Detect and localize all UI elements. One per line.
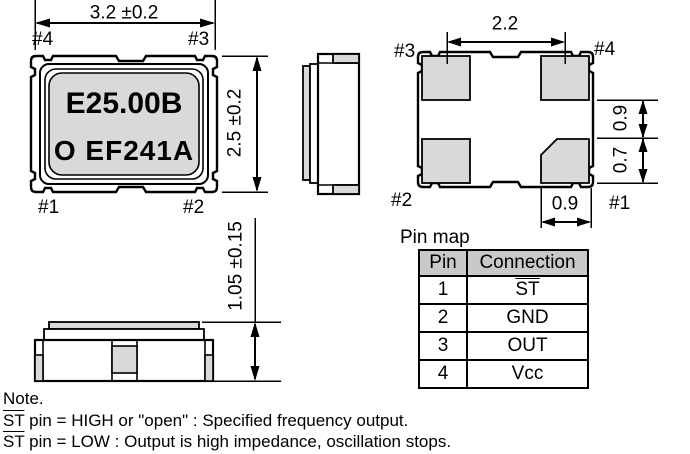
dim-pad-pitch-label: 2.2 (492, 15, 518, 34)
bottom-view-pin4-label: #4 (594, 40, 615, 59)
side-view-vertical (303, 54, 359, 194)
top-view-pin3-label: #3 (188, 30, 209, 49)
arrowhead (551, 38, 565, 47)
bottom-view-pin2-label: #2 (391, 191, 412, 210)
solder-pad (333, 54, 359, 63)
arrowhead (251, 366, 260, 381)
dim-pad-gap-label: 0.9 (612, 105, 631, 131)
lid-layer-outer (303, 66, 310, 180)
note-block: Note. ST pin = HIGH or "open" : Specifie… (3, 388, 451, 453)
arrowhead (639, 124, 648, 138)
note-title: Note. (3, 388, 451, 410)
st-bar-signal: ST (3, 411, 24, 430)
top-view-pin1-label: #1 (38, 198, 59, 217)
st-bar-signal: ST (3, 432, 24, 451)
side-view-horizontal (35, 322, 213, 381)
dim-total-height-label: 1.05 ±0.15 (227, 221, 246, 311)
note-line-1: ST pin = HIGH or "open" : Specified freq… (3, 410, 451, 432)
pin-number: 4 (419, 360, 467, 388)
lid-layer-inner (310, 64, 318, 183)
marking-lot-code: O EF241A (54, 137, 194, 165)
arrowhead (35, 19, 50, 28)
pad-2 (422, 139, 470, 183)
arrowhead (251, 322, 260, 337)
dim-pad-width-label: 0.9 (552, 195, 578, 214)
arrowhead (639, 138, 648, 152)
end-terminal (35, 355, 43, 381)
top-view (31, 56, 217, 192)
arrowhead (541, 218, 555, 227)
pin-map-row-3: 3 OUT (419, 332, 588, 360)
note-line-2-text: pin = LOW : Output is high impedance, os… (24, 432, 451, 451)
dim-top-height-label: 2.5 ±0.2 (226, 89, 245, 158)
pin-map-table: Pin Connection 1 ST 2 GND 3 OUT 4 Vcc (418, 249, 589, 389)
lid (49, 322, 199, 329)
arrowhead (577, 218, 591, 227)
dim-pad-len-label: 0.7 (612, 147, 631, 173)
pin-map-row-1: 1 ST (419, 276, 588, 304)
pin-number: 2 (419, 304, 467, 332)
arrowhead (639, 169, 648, 183)
end-terminal (205, 355, 213, 381)
arrowhead (639, 100, 648, 114)
top-view-pin2-label: #2 (183, 198, 204, 217)
arrowhead (447, 38, 461, 47)
dim-top-width-label: 3.2 ±0.2 (90, 4, 159, 23)
pin-map-row-4: 4 Vcc (419, 360, 588, 388)
marking-frequency: E25.00B (66, 89, 183, 119)
pin-map-header-connection: Connection (467, 250, 588, 276)
note-line-1-text: pin = HIGH or "open" : Specified frequen… (24, 411, 408, 430)
st-bar-signal: ST (515, 279, 539, 300)
top-view-pin4-label: #4 (32, 30, 53, 49)
pin-connection: OUT (467, 332, 588, 360)
body (318, 54, 359, 194)
pin-map-header-row: Pin Connection (419, 250, 588, 276)
package-drawing-page: 3.2 ±0.2 2.5 ±0.2 2.2 0.9 0.7 0.9 1.05 ±… (0, 0, 690, 454)
pin-map-title: Pin map (400, 228, 470, 247)
bottom-view-pin3-label: #3 (394, 42, 415, 61)
pad-3 (422, 56, 470, 100)
pin-number: 3 (419, 332, 467, 360)
pin-number: 1 (419, 276, 467, 304)
pin-map-header-pin: Pin (419, 250, 467, 276)
pin-map-row-2: 2 GND (419, 304, 588, 332)
pin-connection: ST (467, 276, 588, 304)
arrowhead (253, 56, 262, 71)
seal-step (44, 329, 204, 340)
arrowhead (253, 177, 262, 192)
solder-pad (333, 185, 359, 194)
arrowhead (200, 19, 215, 28)
bottom-view (418, 52, 593, 187)
pin-connection: Vcc (467, 360, 588, 388)
dim-pad-right-arrows (639, 100, 648, 183)
bottom-view-pin1-label: #1 (609, 194, 630, 213)
center-terminal (112, 346, 137, 373)
note-line-2: ST pin = LOW : Output is high impedance,… (3, 431, 451, 453)
pin-connection: GND (467, 304, 588, 332)
